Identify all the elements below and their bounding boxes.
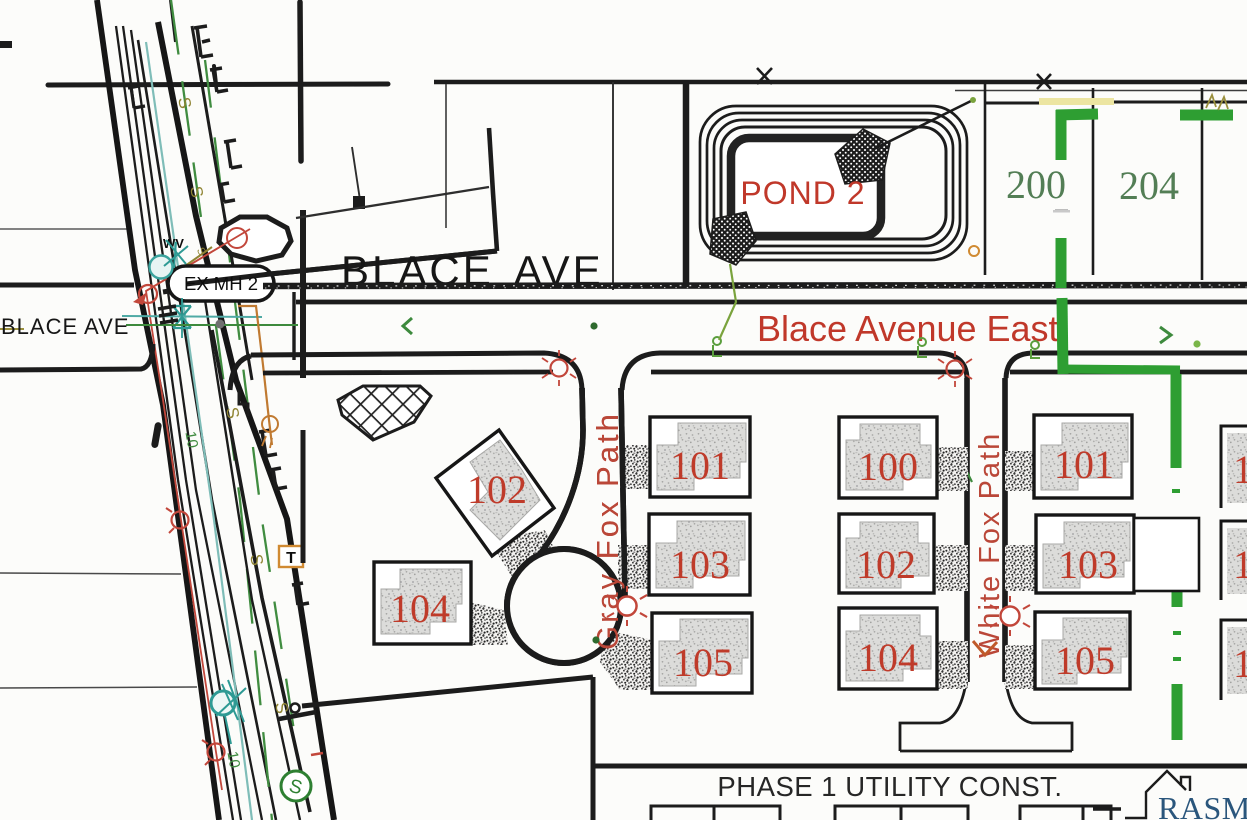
svg-text:102: 102 (856, 542, 916, 587)
svg-text:10: 10 (223, 750, 243, 769)
svg-text:PHASE 1 UTILITY CONST.: PHASE 1 UTILITY CONST. (717, 771, 1062, 802)
svg-text:204: 204 (1119, 163, 1179, 208)
svg-text:BLACE AVE: BLACE AVE (1, 314, 129, 339)
svg-text:Blace Avenue East: Blace Avenue East (757, 308, 1059, 349)
svg-text:1: 1 (1233, 641, 1247, 686)
svg-text:101: 101 (670, 443, 730, 488)
svg-text:103: 103 (1058, 542, 1118, 587)
svg-text:10: 10 (181, 430, 201, 449)
svg-text:105: 105 (673, 640, 733, 685)
svg-text:Gray Fox Path: Gray Fox Path (590, 411, 625, 650)
svg-text:T: T (286, 550, 296, 567)
svg-text:102: 102 (467, 467, 527, 512)
svg-text:1: 1 (1233, 542, 1247, 587)
svg-text:POND 2: POND 2 (740, 175, 865, 211)
svg-text:105: 105 (1055, 638, 1115, 683)
svg-text:101: 101 (1054, 442, 1114, 487)
svg-text:104: 104 (858, 635, 918, 680)
svg-text:104: 104 (390, 586, 450, 631)
svg-text:1: 1 (1233, 447, 1247, 492)
svg-text:White Fox Path: White Fox Path (974, 432, 1006, 658)
svg-text:200: 200 (1006, 162, 1066, 207)
svg-text:100: 100 (858, 444, 918, 489)
svg-text:103: 103 (670, 542, 730, 587)
svg-text:RASM: RASM (1158, 790, 1247, 820)
svg-text:EX MH 2: EX MH 2 (184, 273, 258, 294)
